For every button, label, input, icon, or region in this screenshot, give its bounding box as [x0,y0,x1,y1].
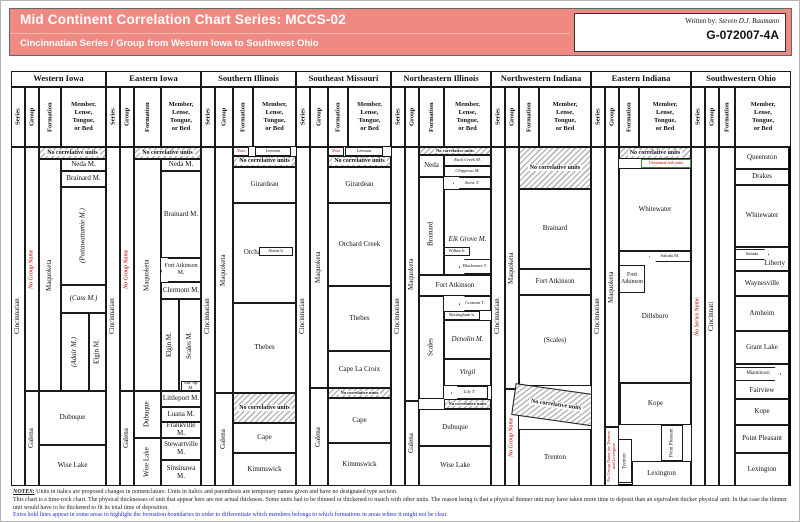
unit-ahern: Ahern b. [259,247,293,256]
unit-stewartville: Stewartville M. [161,438,201,460]
unit-saluda: Saluda M. [649,251,691,262]
unit-clermont: Clermont M. [161,282,201,299]
formation-scales: Scales [419,296,444,399]
subcol-header-member: Member, Lense, Tongue, or Bed [444,87,491,147]
series-label: No Series Name [691,147,705,486]
subcol-header-series: Series [491,87,505,147]
group-label-upper: Maquoketa [405,147,419,401]
unit-cape: Cape [328,398,391,443]
formation-column-empty [719,147,735,486]
unit-elgin: Elgin M. [89,313,106,391]
unit-miamitown: Miamitown [735,367,781,381]
region-header-southern-illinois: Southern Illinois [201,71,296,87]
subcol-header-member: Member, Lense, Tongue, or Bed [539,87,591,147]
no-correlative-label: No correlative units [140,150,195,157]
unit-whitewater: Whitewater [735,185,789,247]
unit-leemon: Leemon [345,147,383,156]
subcol-header-member: Member, Lense, Tongue, or Bed [348,87,391,147]
region-header-western-iowa: Western Iowa [11,71,106,87]
unit-queenston: Queenston [735,147,789,169]
subcol-header-series: Series [391,87,405,147]
unit-arnheim: Arnheim [735,296,789,331]
formation-neda: Neda [419,155,444,177]
subcol-header-member: Member, Lense, Tongue, or Bed [639,87,691,147]
group-label-upper: No Group Name [120,147,134,391]
author-name: Steven D.J. Baumann [719,17,779,25]
document-id: G-072007-4A [575,28,779,42]
subcol-header-member: Member, Lense, Tongue, or Bed [161,87,201,147]
no-correlative-label: No correlative units [447,402,489,407]
unit-fort-atkinson: Fort Atkinson [519,269,591,295]
unit-trenton: Trenton [618,439,632,483]
subcol-header-group: Group [25,87,39,147]
subcol-header-series: Series [591,87,605,147]
unit-thebes: Thebes [328,286,391,351]
no-correlative-zone: No correlative units [233,156,296,167]
formation-dubuque: Dubuque [134,391,161,438]
unit-brainard: Brainard M. [61,171,106,187]
unit-adair: (Adair M.) [61,313,89,391]
unit-pottawattamie: (Pottawattamie M.) [61,187,106,285]
unit-noix: Noix [233,147,249,156]
no-correlative-label: No correlative units [529,398,584,412]
subcol-header-series: Series [296,87,310,147]
written-by-label: Written by: [685,17,717,25]
unit-stone-tongue: Stone T. [453,177,491,189]
chart-sheet: Mid Continent Correlation Chart Series: … [0,0,800,522]
subcol-header-formation: Formation [519,87,539,147]
no-correlative-zone: No correlative units [444,399,491,409]
title-bar: Mid Continent Correlation Chart Series: … [9,8,792,56]
formation-fort-atkinson: Fort Atkinson [419,274,491,296]
footnote-line-1: NOTES: Units in italics are proposed cha… [13,489,789,497]
region-header-northeastern-illinois: Northeastern Illinois [391,71,491,87]
unit-dubuque: Dubuque [39,391,106,445]
no-correlative-label: No correlative units [332,158,387,165]
no-correlative-label: No correlative units [45,150,100,157]
unit-leemon: Leemon [255,147,291,156]
series-label: Cincinnatian [591,147,605,486]
unit-rottingham-bed: Rottingham b. [444,311,480,320]
unit-point-pleasant: Point Pleasant [735,425,789,453]
unit-waynesville: Waynesville [735,271,789,296]
unit-kope: Kope [735,399,789,425]
chart-title: Mid Continent Correlation Chart Series: … [20,12,346,27]
unit-chippewa: Chippewa M. [444,166,491,177]
unit-orchard-creek: Orchard Creek [328,203,391,286]
unit-drakes: Drakes [735,169,789,185]
subcol-header-formation: Formation [328,87,348,147]
chart-subtitle: Cincinnatian Series / Group from Western… [20,38,319,49]
title-separator [10,33,570,34]
group-label-lower: Galena [120,391,134,486]
unit-grant-lake: Grant Lake [735,331,789,364]
unit-fort-atkinson: Fort Atkinson M. [161,258,201,282]
unit-sinsinawa: Sinsinawa M. [161,460,201,486]
no-correlative-zone: No correlative units [419,147,491,155]
unit-dubuque: Dubuque [419,409,491,446]
unit-virgil: Virgil [444,359,491,386]
unit-unnamed-red: Unnamed red units [641,159,691,168]
subcol-header-series: Series [11,87,25,147]
unit-trenton: Trenton [519,429,591,486]
footnote-line-2: This chart is a time-rock chart. The phy… [13,497,789,513]
unit-thebes: Thebes [233,303,296,393]
unit-scales: Scales M. [179,299,201,391]
footnote-line-3: Extra bold lines appear in some areas to… [13,512,789,520]
region-header-southeast-missouri: Southeast Missouri [296,71,391,87]
unit-lexington: Lexington [735,453,789,486]
subcol-header-member: Member, Lense, Tongue, or Bed [61,87,106,147]
unit-wise-lake: Wise Lake [39,445,106,486]
subcol-header-member: Member, Lense, Tongue, or Bed [253,87,296,147]
group-label-upper: Maquoketa [505,147,519,389]
unit-girardeau: Girardeau [328,167,391,203]
region-header-northwestern-indiana: Northwestern Indiana [491,71,591,87]
notes-label: NOTES: [13,489,35,495]
subcol-header-series: Series [201,87,215,147]
subcol-header-group: Group [505,87,519,147]
unit-whitewater: Whitewater [619,168,691,251]
unit-brainard: Brainard [519,189,591,269]
subcol-header-group: Group [605,87,619,147]
no-correlative-zone: No correlative units [619,147,691,159]
footnotes: NOTES: Units in italics are proposed cha… [13,489,789,520]
group-label-upper: Maquoketa [605,147,619,427]
formation-label: Maquoketa [39,159,61,391]
unit-scales: (Scales) [519,295,591,386]
no-correlative-label: No correlative units [434,149,476,154]
unit-littleport: Littleport M. [161,391,201,407]
unit-am-sp: Am. Sp. M. [181,381,201,391]
region-header-eastern-indiana: Eastern Indiana [591,71,691,87]
subcol-header-group: Group [405,87,419,147]
group-label-upper: No Group Name [25,147,39,391]
series-label: Cincinnatian [491,147,505,486]
no-correlative-label: No correlative units [528,165,583,172]
subcol-header-series: Series [691,87,705,147]
unit-saluda: Saluda [735,249,769,260]
group-label-lower: Galena [25,391,39,486]
series-label: Cincinnatian [11,147,25,486]
unit-denolin: Denolin M. [444,320,491,359]
no-correlative-zone: No correlative units [233,393,296,423]
unit-noix: Noix [328,147,344,156]
group-label: Cincinnati [705,147,719,486]
unit-cape: Cape [233,423,296,453]
group-label-upper: Maquoketa [215,147,233,393]
formation-wise-lake: Wise Lake [134,438,161,486]
no-correlative-label: No correlative units [237,405,292,412]
subcol-header-formation: Formation [719,87,735,147]
series-label: Cincinnatian [296,147,310,486]
formation-label: Maquoketa [134,159,161,391]
no-correlative-zone: No correlative units [328,156,391,167]
no-correlative-zone: No correlative units [134,147,201,159]
unit-wise-lake: Wise Lake [419,446,491,486]
no-correlative-zone: No correlative units [39,147,106,159]
group-label-upper: Maquoketa [310,147,328,388]
unit-fort-atkinson: Fort Atkinson [619,265,645,293]
region-header-southwestern-ohio: Southwestern Ohio [691,71,791,87]
no-correlative-zone: No correlative units [328,388,391,398]
no-correlative-label: No correlative units [237,158,292,165]
group-label-lower: Galena [215,393,233,486]
footnote-text-1: Units in italics are proposed changes in… [36,489,397,495]
unit-lexington: Lexington [632,461,691,486]
subcol-header-formation: Formation [419,87,444,147]
unit-elgin: Elgin M. [161,299,179,391]
subcol-header-group: Group [120,87,134,147]
unit-cass: (Cass M.) [61,285,106,313]
group-label-lower: No Group Name for Trenton and Lexington [605,427,619,486]
unit-girardeau: Girardeau [233,167,296,203]
subcol-header-series: Series [106,87,120,147]
subcol-header-group: Group [215,87,233,147]
subcol-header-formation: Formation [233,87,253,147]
unit-rock-creek: Rock Creek M. [444,155,491,166]
series-label: Cincinnatian [391,147,405,486]
unit-kimmswick: Kimmswick [328,443,391,486]
unit-cronson-tongue: Cronson T. [459,296,491,311]
unit-wilbur-bed: Wilbur b. [444,247,470,256]
no-correlative-label: No correlative units [628,150,683,157]
unit-luana: Luana M. [161,407,201,422]
group-label-lower: Galena [405,401,419,486]
no-correlative-label: No correlative units [339,391,381,396]
unit-point-pleasant: Point Pleasant [661,425,683,461]
region-header-eastern-iowa: Eastern Iowa [106,71,201,87]
unit-brainard: Brainard M. [161,171,201,258]
subcol-header-formation: Formation [619,87,639,147]
subcol-header-group: Group [705,87,719,147]
written-by-box: Written by: Steven D.J. Baumann G-072007… [574,13,786,52]
unit-lily-tongue: Lily T. [451,386,488,399]
unit-cape-la-croix: Cape La Croix [328,351,391,388]
series-label: Cincinnatian [201,147,215,486]
subcol-header-formation: Formation [39,87,61,147]
no-correlative-zone: No correlative units [519,147,591,189]
unit-neda: Neda M. [161,159,201,171]
unit-kope: Kope [619,383,691,425]
unit-neda: Neda M. [61,159,106,171]
series-label: Cincinnatian [106,147,120,486]
unit-blackmore-tongue: Blackmore T. [459,259,491,274]
subcol-header-formation: Formation [134,87,161,147]
subcol-header-member: Member, Lense, Tongue, or Bed [735,87,791,147]
subcol-header-group: Group [310,87,328,147]
unit-frankville: Frankville M. [161,422,201,438]
group-label-lower: Galena [310,388,328,486]
unit-kimmswick: Kimmswick [233,453,296,486]
